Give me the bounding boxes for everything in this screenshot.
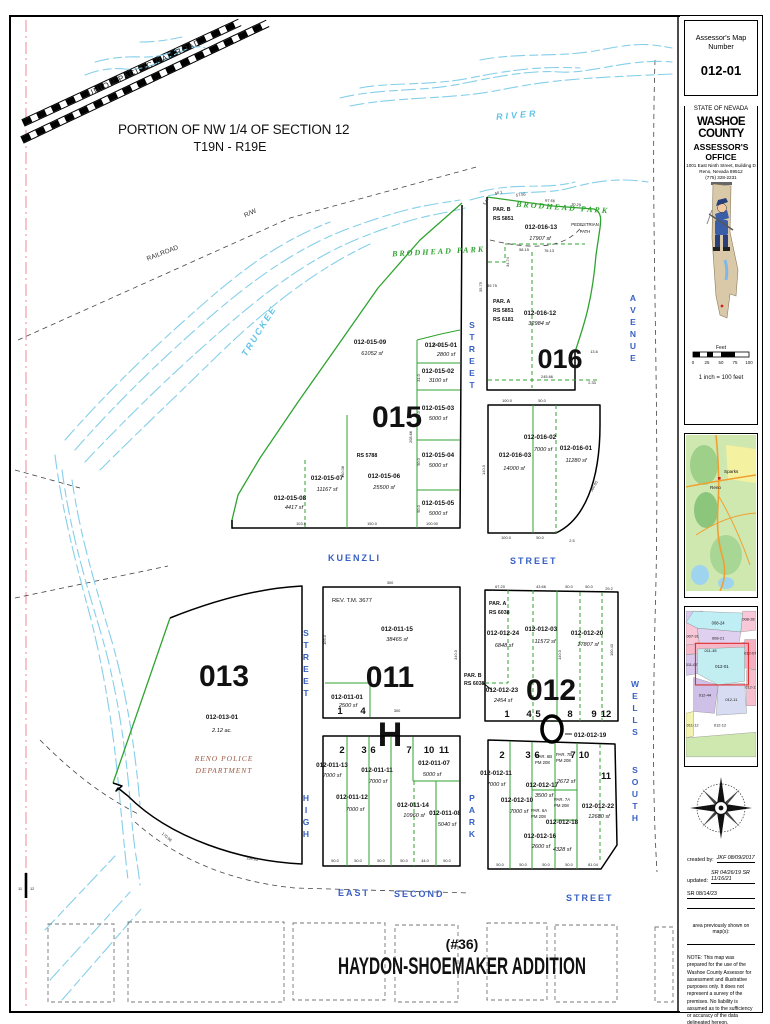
parcel-015-08-apn: 012-015-08 — [274, 495, 307, 502]
office-address-1: 1001 East Ninth Street, Building D — [685, 163, 757, 168]
street-second: SECOND — [394, 889, 445, 899]
disclaimer-note: NOTE: This map was prepared for the use … — [687, 955, 755, 1024]
parcel-011-07-sf: 5000 sf — [423, 772, 443, 778]
section-line — [25, 20, 28, 1010]
parcel-013-01-apn: 012-013-01 — [206, 714, 239, 721]
svg-text:29.2: 29.2 — [605, 586, 613, 591]
assessor-map-sheet: 11 12 — [0, 0, 770, 1024]
svg-text:50.0: 50.0 — [416, 504, 421, 512]
scale-bar: Feet 0 25 50 75 100 1 inch = 100 feet — [685, 343, 758, 387]
par-a-012-label: PAR. A — [489, 601, 507, 607]
svg-text:50.0: 50.0 — [354, 858, 362, 863]
index-012-13: 012-13 — [745, 685, 756, 690]
lot-number: 3 — [361, 745, 366, 756]
parcel-011-15-sf: 38465 sf — [386, 637, 409, 643]
svg-text:44.0: 44.0 — [421, 858, 429, 863]
parcel-015-05-sf: 5000 sf — [429, 511, 449, 517]
block-013-outline — [113, 586, 302, 864]
street-high: HIGH — [300, 793, 311, 841]
parcel-015-05-apn: 012-015-05 — [422, 500, 455, 507]
scale-tick-0: 0 — [692, 360, 695, 365]
updated-value-1: SR 04/26/19 SR 11/16/21 — [711, 870, 755, 884]
parcel-015-06-sf: 25500 sf — [372, 485, 396, 491]
parcel-016-13-sf: 17907 sf — [529, 236, 552, 242]
parcel-011-12-apn: 012-011-12 — [336, 794, 368, 801]
parcel-015-04-sf: 5000 sf — [429, 463, 449, 469]
block-013-number: 013 — [199, 660, 249, 693]
svg-text:100.00: 100.00 — [426, 521, 439, 526]
lot-number: 2 — [499, 750, 504, 761]
index-012-12: 012-12 — [714, 723, 726, 728]
par-a-012-rs: RS 6038 — [489, 610, 510, 616]
par-b-016-label: PAR. B — [493, 207, 511, 213]
sidebar-panel: Assessor's Map Number 012-01 STATE OF NE… — [680, 16, 762, 1012]
parcel-012-20-sf: 17807 sf — [577, 642, 600, 648]
blank-previously-line — [687, 935, 755, 945]
parcel-011-13-sf: 7000 sf — [323, 773, 343, 779]
svg-text:35.75: 35.75 — [478, 282, 483, 292]
svg-text:50.0: 50.0 — [565, 584, 573, 589]
block-letter-o — [542, 716, 562, 742]
svg-text:100.0: 100.0 — [432, 342, 443, 347]
parcel-012-10-sf: 7000 sf — [510, 809, 530, 815]
svg-text:105.0: 105.0 — [322, 634, 327, 645]
assessor-office-box: STATE OF NEVADA WASHOE COUNTY ASSESSOR'S… — [684, 106, 758, 425]
svg-text:81.04: 81.04 — [588, 862, 599, 867]
block-015-number: 015 — [372, 401, 422, 434]
state-label: STATE OF NEVADA — [685, 106, 757, 112]
parcel-016-03-sf: 14000 sf — [503, 466, 526, 472]
svg-text:43.66: 43.66 — [536, 584, 546, 589]
street-avenue: AVENUE — [627, 293, 638, 365]
parcel-015-03-apn: 012-015-03 — [422, 405, 455, 412]
parcel-011-13-apn: 012-011-13 — [316, 762, 348, 769]
parcel-012-22-sf: 12680 sf — [588, 814, 611, 820]
parcel-011-11-sf: 7000 sf — [369, 779, 389, 785]
par-b-012-label: PAR. B — [464, 673, 482, 679]
lot-number: 11 — [439, 745, 450, 756]
lot-number: 4 — [360, 706, 366, 717]
map-number-label: Assessor's Map Number — [685, 33, 757, 51]
street-high-street: STREET — [300, 628, 311, 700]
svg-text:50.0: 50.0 — [585, 584, 593, 589]
pedestrian-path-label2: PATH — [580, 229, 591, 234]
revision-block: created by: JKF 08/09/2017 updated: SR 0… — [687, 855, 755, 945]
lot-number: 10 — [424, 745, 435, 756]
parcel-012-03-sf: 11572 sf — [534, 639, 556, 645]
parcel-013-01-area: 2.12 ac. — [211, 728, 232, 734]
lot-number: 9 — [591, 709, 596, 720]
block-011-number: 011 — [366, 661, 414, 694]
parcel-011-08-sf: 5040 sf — [438, 822, 458, 828]
par-7a-label: PAR. 7A — [554, 797, 570, 802]
par-b-016-rs: RS 5851 — [493, 216, 514, 222]
svg-text:340.0: 340.0 — [453, 649, 458, 660]
par-a-016-label: PAR. A — [493, 299, 511, 305]
parcel-015-08-sf: 4417 sf — [285, 505, 305, 511]
par-6a-pm: PM 208 — [531, 814, 546, 819]
map-canvas: 11 12 — [0, 0, 770, 1024]
street-east: EAST — [338, 888, 370, 898]
street-street: STREET — [566, 893, 614, 903]
svg-text:50.1: 50.1 — [494, 189, 503, 196]
map-title: PORTION OF NW 1/4 OF SECTION 12 T19N - R… — [118, 122, 342, 154]
svg-text:208.66: 208.66 — [408, 431, 413, 443]
svg-text:170.98: 170.98 — [161, 831, 173, 842]
map-number-value: 012-01 — [685, 63, 757, 78]
lot-number: 8 — [567, 709, 572, 720]
svg-text:199.65: 199.65 — [246, 855, 258, 862]
parcel-011-15-apn: 012-011-15 — [381, 626, 413, 633]
parcel-012-23-sf: 2454 sf — [493, 698, 514, 704]
parcel-015-09-apn: 012-015-09 — [354, 339, 387, 346]
svg-text:245.66: 245.66 — [541, 374, 553, 379]
subdivision-title: HAYDON-SHOEMAKER ADDITION — [334, 953, 590, 981]
lot-number: 1 — [337, 706, 343, 717]
sheet-frame — [10, 16, 762, 1012]
svg-text:100.0: 100.0 — [502, 398, 513, 403]
parcel-015-06-apn: 012-015-06 — [368, 473, 401, 480]
svg-text:140.08: 140.08 — [340, 466, 345, 478]
lot-number: 6 — [370, 745, 375, 756]
parcel-012-16-apn: 012-012-16 — [524, 833, 557, 840]
map-title-line2: T19N - R19E — [118, 140, 342, 154]
par-6b-pm: PM 208 — [535, 760, 550, 765]
svg-text:300: 300 — [394, 708, 401, 713]
adjacent-sheets-index-map: 008-24 008-28 007-31 008-21 011-45 012-0… — [684, 606, 758, 767]
parcel-015-02-sf: 3100 sf — [429, 378, 449, 384]
street-kuenzli: KUENZLI — [328, 553, 381, 563]
office-label: ASSESSOR'S OFFICE — [685, 142, 757, 162]
lot-number: 11 — [601, 771, 612, 782]
subdivision-number: (#36) — [262, 936, 662, 952]
svg-text:100.43: 100.43 — [609, 644, 614, 656]
svg-text:103.5: 103.5 — [296, 521, 306, 526]
street-wells: WELLS — [629, 679, 640, 739]
parcel-012-16-sf: 2600 sf — [531, 844, 552, 850]
svg-text:50.0: 50.0 — [377, 858, 385, 863]
index-008-24: 008-24 — [712, 620, 726, 625]
svg-text:58.15: 58.15 — [519, 247, 529, 252]
parcel-012-24-apn: 012-012-24 — [487, 630, 520, 637]
scale-tick-100: 100 — [745, 360, 753, 365]
parcel-015-07-apn: 012-015-07 — [311, 475, 344, 482]
street-kuenzli-street: STREET — [510, 556, 558, 566]
svg-text:50.0: 50.0 — [443, 858, 451, 863]
svg-text:2.33: 2.33 — [588, 380, 596, 385]
compass-container — [680, 773, 762, 848]
index-012-01: 012-01 — [715, 664, 729, 669]
county-map-sparks: Sparks — [724, 469, 739, 474]
svg-text:50.0: 50.0 — [496, 862, 504, 867]
parcel-012-17-apn: 012-012-17 — [526, 782, 559, 789]
map-title-line1: PORTION OF NW 1/4 OF SECTION 12 — [118, 122, 342, 137]
pedestrian-path-label1: PEDESTRIAN — [571, 222, 598, 227]
created-by-label: created by: — [687, 857, 714, 863]
scale-tick-50: 50 — [719, 360, 724, 365]
index-008-28: 008-28 — [742, 617, 755, 622]
block-letter-h: H — [378, 716, 403, 754]
lot-number: 10 — [579, 750, 590, 761]
parcel-016-01-sf: 11280 sf — [565, 458, 587, 464]
svg-text:300: 300 — [387, 580, 394, 585]
parcel-016-02-apn: 012-016-02 — [524, 434, 557, 441]
par-7b-sf: 2672 sf — [556, 779, 577, 785]
parcel-012-11-apn: 012-012-11 — [480, 770, 512, 777]
par-a-016-rs2: RS 6181 — [493, 317, 514, 323]
svg-text:160.05: 160.05 — [589, 480, 599, 493]
svg-text:50.0: 50.0 — [331, 858, 339, 863]
svg-text:76.13: 76.13 — [544, 248, 554, 253]
svg-text:67.20: 67.20 — [495, 584, 506, 589]
lot-number: 2 — [339, 745, 344, 756]
parcel-012-17-sf: 3500 sf — [535, 793, 555, 799]
blank-revision-line — [687, 899, 755, 909]
index-011-07: 011-07 — [686, 662, 698, 667]
scale-tick-75: 75 — [733, 360, 738, 365]
svg-text:31.0: 31.0 — [416, 373, 421, 381]
parcel-012-20-apn: 012-012-20 — [571, 630, 604, 637]
block-015-rs: RS 5788 — [357, 453, 378, 459]
svg-text:50.0: 50.0 — [416, 457, 421, 465]
parcel-015-03-sf: 5000 sf — [429, 416, 449, 422]
parcel-011-11-apn: 012-011-11 — [361, 767, 393, 774]
parcel-015-01-sf: 2800 sf — [436, 352, 457, 358]
street-park: PARK — [466, 793, 477, 841]
par-6a-label: PAR. 6A — [531, 808, 547, 813]
reno-police-line2: DEPARTMENT — [192, 765, 256, 777]
reno-police-label: RENO POLICE DEPARTMENT — [192, 753, 256, 777]
svg-text:50.0: 50.0 — [538, 398, 546, 403]
parcel-016-02-sf: 7000 sf — [534, 447, 554, 453]
parcel-016-01-apn: 012-016-01 — [560, 445, 593, 452]
map-number-box: Assessor's Map Number 012-01 — [684, 20, 758, 96]
parcel-011-01-apn: 012-011-01 — [331, 694, 363, 701]
svg-text:50.0: 50.0 — [400, 858, 408, 863]
svg-text:2.5: 2.5 — [569, 538, 574, 543]
par-6b-label: PAR. 6B — [536, 754, 552, 759]
svg-text:50.0: 50.0 — [565, 862, 573, 867]
svg-text:140.0: 140.0 — [481, 464, 486, 475]
parcel-012-18-sf: 4328 sf — [553, 847, 573, 853]
par-b-012-rs: RS 6038 — [464, 681, 485, 687]
scale-feet-label: Feet — [716, 345, 727, 351]
truckee-river-lines — [45, 37, 672, 1000]
street-south: SOUTH — [629, 765, 640, 825]
county-label: WASHOE COUNTY — [685, 116, 757, 140]
parcel-015-07-sf: 11167 sf — [317, 487, 339, 493]
parcel-016-03-apn: 012-016-03 — [499, 452, 532, 459]
lot-number: 3 — [525, 750, 530, 761]
par-a-016-rs1: RS 5851 — [493, 308, 514, 314]
index-012-11: 012-11 — [725, 697, 738, 702]
lot-number: 7 — [406, 745, 411, 756]
parcel-012-19-apn: 012-012-19 — [574, 732, 607, 739]
svg-text:50.0: 50.0 — [519, 862, 527, 867]
index-011-12: 011-12 — [687, 723, 699, 728]
updated-label: updated: — [687, 878, 708, 884]
section-number-right: 12 — [30, 886, 34, 891]
svg-text:34.74: 34.74 — [505, 256, 510, 267]
index-008-21: 008-21 — [712, 636, 725, 641]
block-012-number: 012 — [526, 674, 576, 707]
parcel-012-22-apn: 012-012-22 — [582, 803, 615, 810]
svg-text:140.0: 140.0 — [557, 649, 562, 660]
parcel-016-12-sf: 32984 sf — [528, 321, 551, 327]
previously-shown-label: area previously shown on map(s): — [687, 923, 755, 935]
block-016-number: 016 — [537, 344, 582, 374]
parcel-016-13-apn: 012-016-13 — [525, 224, 558, 231]
parcel-015-02-apn: 012-015-02 — [422, 368, 455, 375]
parcel-012-24-sf: 6848 sf — [495, 643, 515, 649]
lot-number: 4 — [526, 709, 532, 720]
parcel-011-12-sf: 7000 sf — [346, 807, 366, 813]
svg-text:57.55: 57.55 — [516, 191, 526, 197]
parcel-011-07-apn: 012-011-07 — [418, 760, 450, 767]
county-map-reno: Reno — [710, 485, 721, 490]
svg-text:150.0: 150.0 — [367, 521, 378, 526]
index-012-07: 012-07 — [744, 651, 756, 656]
reno-police-line1: RENO POLICE — [192, 753, 256, 765]
par-7a-pm: PM 208 — [554, 803, 569, 808]
lot-number: 5 — [535, 709, 541, 720]
office-address-2: Reno, Nevada 89512 — [685, 169, 757, 174]
svg-text:39.75: 39.75 — [487, 283, 497, 288]
index-012-44: 012-44 — [699, 692, 712, 697]
par-7b-pm: PM 208 — [556, 758, 571, 763]
block-011-rev-tm: REV. T.M. 3677 — [332, 598, 372, 604]
parcel-012-10-apn: 012-012-10 — [501, 797, 534, 804]
parcel-015-09-sf: 61052 sf — [361, 351, 384, 357]
index-011-45: 011-45 — [705, 648, 718, 653]
parcel-011-14-sf: 10960 sf — [403, 813, 426, 819]
updated-value-2: SR 08/14/23 — [687, 891, 755, 899]
parcel-016-12-apn: 012-016-12 — [524, 310, 557, 317]
par-7b-label: PAR. 7B — [556, 752, 572, 757]
county-locator-map: Sparks Reno — [684, 433, 758, 598]
parcel-012-03-apn: 012-012-03 — [525, 626, 558, 633]
svg-text:100.0: 100.0 — [501, 535, 512, 540]
svg-text:50.0: 50.0 — [536, 535, 544, 540]
parcel-012-11-sf: 7000 sf — [487, 782, 507, 788]
svg-text:50.0: 50.0 — [542, 862, 550, 867]
parcel-015-04-apn: 012-015-04 — [422, 452, 455, 459]
section-number-left: 11 — [18, 886, 22, 891]
compass-rose — [688, 773, 754, 843]
parcel-011-14-apn: 012-011-14 — [397, 802, 429, 809]
svg-text:13.6: 13.6 — [590, 349, 598, 354]
scale-tick-25: 25 — [705, 360, 710, 365]
svg-text:50.0: 50.0 — [416, 410, 421, 418]
index-007-31: 007-31 — [686, 634, 699, 639]
parcel-011-08-apn: 012-011-08 — [429, 810, 461, 817]
street-park-north: STREET — [466, 320, 477, 392]
scale-caption: 1 inch = 100 feet — [699, 375, 744, 381]
nevada-mascot-graphic — [685, 180, 758, 338]
lot-number: 12 — [601, 709, 612, 720]
parcel-012-18-apn: 012-012-18 — [546, 819, 579, 826]
lot-number: 1 — [504, 709, 510, 720]
parcel-012-23-apn: 012-012-23 — [486, 687, 519, 694]
created-by-value: JKF 08/09/2017 — [717, 855, 755, 863]
